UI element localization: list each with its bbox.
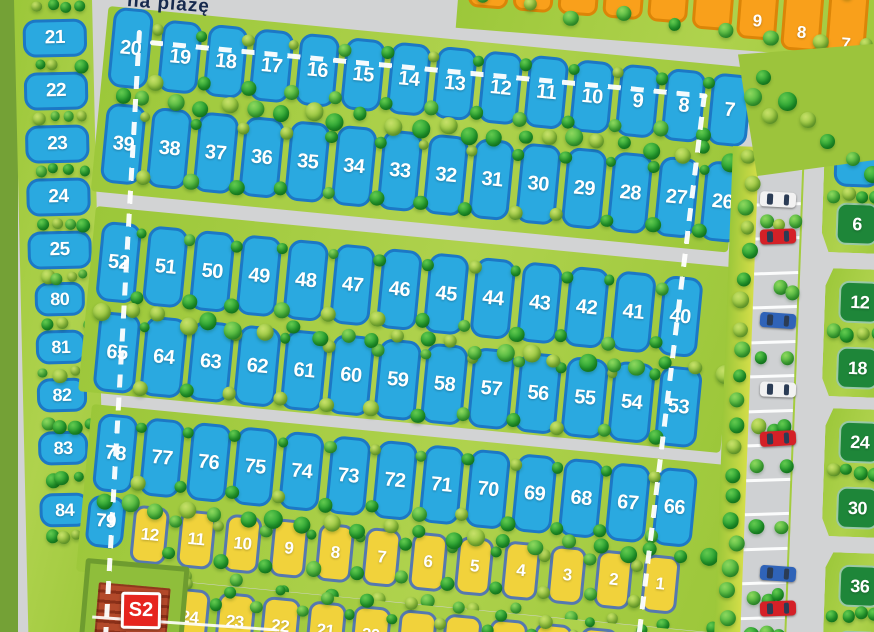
- tree-icon: [381, 46, 394, 59]
- plot-22[interactable]: 22: [258, 596, 301, 632]
- car-windshield: [767, 433, 774, 444]
- tree-icon: [150, 306, 166, 322]
- car-icon: [760, 600, 797, 616]
- plot-19[interactable]: 19: [157, 19, 204, 95]
- parking-spot-line: [749, 408, 793, 412]
- car-icon: [760, 430, 797, 447]
- tree-icon: [48, 164, 58, 174]
- tree-icon: [57, 531, 70, 544]
- car-icon: [760, 312, 797, 329]
- tree-icon: [50, 273, 62, 285]
- tree-icon: [542, 130, 557, 145]
- parking-spot-line: [744, 546, 788, 550]
- tree-icon: [62, 163, 73, 174]
- parking-spot-line: [753, 305, 797, 309]
- car-windshield: [767, 193, 774, 204]
- tree-icon: [655, 282, 669, 296]
- tree-icon: [762, 108, 778, 124]
- tree-icon: [182, 427, 193, 438]
- tree-icon: [800, 112, 816, 128]
- tree-icon: [820, 134, 835, 149]
- tree-icon: [732, 322, 748, 338]
- tree-icon: [74, 1, 85, 12]
- tree-icon: [64, 111, 74, 121]
- tree-icon: [53, 420, 67, 434]
- tree-icon: [41, 318, 53, 330]
- tree-icon: [500, 516, 515, 531]
- tree-icon: [404, 596, 418, 610]
- car-windshield: [767, 231, 773, 242]
- tree-icon: [778, 92, 797, 111]
- parking-spot-line: [751, 340, 795, 344]
- car-icon: [760, 191, 797, 208]
- tree-icon: [359, 593, 374, 608]
- station-s2-badge[interactable]: S2: [121, 592, 162, 630]
- car-rear-window: [784, 384, 789, 395]
- plot-24[interactable]: 24: [838, 420, 874, 463]
- tree-icon: [54, 471, 69, 486]
- tree-icon: [856, 191, 868, 203]
- tree-icon: [600, 465, 612, 477]
- tree-icon: [839, 328, 854, 343]
- tree-icon: [38, 368, 48, 378]
- car-icon: [760, 381, 797, 397]
- car-rear-window: [784, 315, 790, 326]
- car-rear-window: [784, 432, 790, 443]
- parking-spot-line: [742, 581, 786, 585]
- car-windshield: [767, 603, 773, 614]
- tree-icon: [469, 260, 483, 274]
- parking-spot-line: [750, 374, 794, 378]
- tree-icon: [740, 221, 754, 235]
- tree-icon: [147, 74, 164, 91]
- plot-18[interactable]: 18: [836, 346, 874, 389]
- tree-icon: [344, 609, 355, 620]
- tree-icon: [789, 214, 803, 228]
- car-icon: [760, 565, 797, 582]
- tree-icon: [60, 2, 71, 13]
- plot-36[interactable]: 36: [838, 564, 874, 607]
- plot-22[interactable]: 22: [24, 71, 89, 110]
- tree-icon: [250, 600, 263, 613]
- plot-83[interactable]: 83: [38, 430, 89, 465]
- tree-icon: [736, 273, 750, 287]
- car-rear-window: [784, 603, 789, 614]
- tree-icon: [510, 603, 521, 614]
- tree-icon: [612, 67, 624, 79]
- plot-81[interactable]: 81: [36, 330, 87, 365]
- tree-icon: [826, 610, 838, 622]
- car-windshield: [767, 314, 774, 325]
- tree-icon: [46, 59, 57, 70]
- plot-12[interactable]: 12: [838, 280, 874, 323]
- tree-icon: [856, 327, 869, 340]
- tree-icon: [827, 190, 840, 203]
- tree-icon: [771, 588, 784, 601]
- plot-20[interactable]: 20: [107, 7, 154, 90]
- tree-icon: [50, 111, 60, 121]
- tree-icon: [775, 521, 789, 535]
- parking-spot-line: [754, 271, 798, 275]
- tree-icon: [744, 175, 761, 192]
- tree-icon: [56, 317, 68, 329]
- car-rear-window: [784, 231, 789, 242]
- tree-icon: [395, 570, 408, 583]
- campsite-map: 21222324258081828384 987 201918171615141…: [0, 0, 874, 632]
- plot-21[interactable]: 21: [304, 600, 347, 632]
- plot-30[interactable]: 30: [836, 486, 874, 529]
- plot-51[interactable]: 51: [142, 225, 189, 308]
- tree-icon: [32, 1, 42, 11]
- tree-icon: [80, 165, 91, 176]
- car-rear-window: [784, 194, 790, 205]
- tree-icon: [190, 118, 202, 130]
- car-rear-window: [784, 568, 790, 579]
- plot-80[interactable]: 80: [34, 282, 85, 317]
- tree-icon: [719, 582, 735, 598]
- plot-21[interactable]: 21: [22, 18, 87, 57]
- tree-icon: [721, 559, 739, 577]
- tree-icon: [508, 205, 523, 220]
- parking-spot-line: [745, 512, 789, 516]
- car-windshield: [767, 384, 773, 395]
- tree-icon: [229, 573, 243, 587]
- tree-icon: [868, 608, 874, 621]
- car-windshield: [767, 567, 774, 578]
- tree-icon: [744, 88, 762, 106]
- tree-icon: [33, 112, 46, 125]
- plot-25[interactable]: 25: [27, 230, 92, 269]
- car-icon: [760, 228, 797, 244]
- tree-icon: [169, 515, 182, 528]
- tree-icon: [48, 0, 59, 10]
- plot-3[interactable]: 3: [546, 545, 587, 606]
- tree-icon: [183, 173, 200, 190]
- plot-67[interactable]: 67: [604, 462, 651, 543]
- parking-spot-line: [746, 477, 790, 481]
- plot-24[interactable]: 24: [26, 177, 91, 216]
- plot-6[interactable]: 6: [835, 202, 874, 245]
- tree-icon: [74, 59, 88, 73]
- plot-23[interactable]: 23: [25, 124, 90, 163]
- tree-icon: [550, 208, 563, 221]
- tree-icon: [734, 341, 750, 357]
- tree-icon: [52, 218, 63, 229]
